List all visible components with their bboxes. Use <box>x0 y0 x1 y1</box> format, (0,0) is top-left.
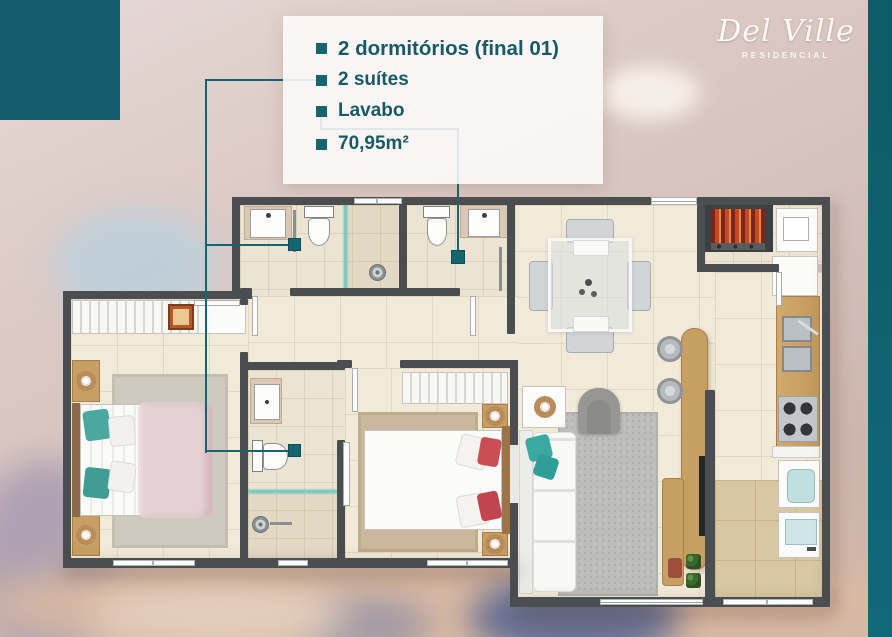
lamp-suite1-bottom <box>76 525 96 545</box>
spec-row-suites: 2 suítes <box>316 70 409 91</box>
floor-hall <box>248 296 518 368</box>
shower-head-suite2-bath <box>252 516 269 533</box>
window-bedroom1 <box>113 560 195 566</box>
door-leaf-lavabo <box>470 296 476 336</box>
shower-head-suite1-bath <box>369 264 386 281</box>
blanket-suite1 <box>138 402 212 518</box>
bullet-square-icon <box>316 43 327 54</box>
background-napkin-blur <box>90 585 350 637</box>
leader-suite2-branch <box>205 450 289 452</box>
wall-right <box>822 197 830 607</box>
marker-lavabo <box>451 250 465 264</box>
kitchen-sink-2 <box>782 346 812 372</box>
window-bedroom2 <box>427 560 508 566</box>
marker-suite2-bathroom <box>288 444 301 457</box>
placemat-top <box>573 240 609 256</box>
background-ceiling-light <box>600 66 700 120</box>
wall-bathblock-bottom-a <box>240 288 252 296</box>
lamp-suite2-bottom <box>485 534 505 554</box>
wardrobe-suite2 <box>402 372 508 404</box>
spec-suites: 2 suítes <box>338 70 409 91</box>
plant-2 <box>686 573 701 588</box>
bar-stool-1 <box>657 336 683 362</box>
sink-suite1-bath <box>250 209 286 238</box>
balcony-counter <box>776 208 818 252</box>
spec-panel: 2 dormitórios (final 01) 2 suítes Lavabo… <box>283 16 603 184</box>
kitchen-shelf <box>772 446 820 458</box>
bullet-square-icon <box>316 139 327 150</box>
washer <box>778 512 820 558</box>
leader-suite1-branch <box>205 244 289 246</box>
bullet-square-icon <box>316 106 327 117</box>
toilet-suite2-bath <box>263 443 288 470</box>
wall-bath1-lavabo-divider <box>399 205 407 296</box>
door-leaf-bedroom2-folded <box>510 445 518 503</box>
wall-bathblock-bottom-b <box>290 288 460 296</box>
spec-row-dormitorios: 2 dormitórios (final 01) <box>316 38 559 61</box>
wall-balcony-left <box>697 205 705 272</box>
decor-vase <box>668 558 682 578</box>
wall-top-main <box>232 197 651 205</box>
window-service <box>723 599 813 605</box>
headboard-suite1 <box>72 403 80 517</box>
wall-bedroom2-top-b <box>400 360 518 368</box>
door-leaf-bath2 <box>343 442 350 506</box>
pillow-white-1 <box>108 415 137 447</box>
wall-living-kitchen-divider <box>705 390 715 607</box>
marketing-slide: 2 dormitórios (final 01) 2 suítes Lavabo… <box>0 0 892 637</box>
towel-rail-lavabo <box>499 247 502 291</box>
wall-bathblock-left <box>232 197 240 296</box>
placemat-bottom <box>573 316 609 332</box>
wall-bedroom2-top-a <box>337 360 352 368</box>
window-bath1 <box>354 198 402 204</box>
wall-bedroom1-right-stub <box>240 299 248 305</box>
wall-top-bedroom1 <box>63 291 252 299</box>
corner-block <box>0 0 120 120</box>
spec-area: 70,95m² <box>338 134 409 155</box>
brand-subtitle: RESIDENCIAL <box>700 50 872 60</box>
cooktop <box>778 396 818 442</box>
door-leaf-balcony <box>776 272 782 306</box>
wall-bath2-top <box>240 362 345 370</box>
sliding-door-living <box>600 599 703 605</box>
door-leaf-bedroom1 <box>194 300 240 306</box>
bar-stool-2 <box>657 378 683 404</box>
wall-bedroom1-right <box>240 352 248 568</box>
brand-name: Del Ville <box>700 14 872 49</box>
headboard-suite2 <box>502 426 510 534</box>
toilet-lavabo <box>427 218 447 246</box>
door-leaf-bath1 <box>252 296 258 336</box>
wall-lavabo-right <box>507 197 515 334</box>
toilet-suite1-bath <box>308 218 330 246</box>
bbq-grill-unit <box>703 205 773 252</box>
spec-dormitorios: 2 dormitórios (final 01) <box>338 38 559 61</box>
window-bath2 <box>278 560 308 566</box>
wall-top-balcony <box>697 197 830 205</box>
bbq-coals <box>711 209 765 243</box>
marker-suite1-bathroom <box>288 238 301 251</box>
dishwasher <box>778 460 820 508</box>
toilet-tank-suite2-bath <box>252 440 263 472</box>
spec-row-area: 70,95m² <box>316 134 409 155</box>
sink-lavabo <box>468 209 500 237</box>
wall-left <box>63 291 71 568</box>
leader-suites-vertical <box>205 79 207 453</box>
wall-step <box>510 558 518 607</box>
wall-balcony-bottom <box>697 264 779 272</box>
door-leaf-bedroom2 <box>352 368 358 412</box>
plant-1 <box>686 554 701 569</box>
sink-suite2-bath <box>254 384 280 420</box>
lamp-living <box>534 396 556 418</box>
side-band <box>868 0 892 637</box>
toilet-tank-lavabo <box>423 206 450 218</box>
sliding-door-balcony-top <box>651 197 697 205</box>
lamp-suite2-top <box>485 406 505 426</box>
lamp-suite1-top <box>76 371 96 391</box>
pillow-white-2 <box>107 460 137 493</box>
brand-logo: Del Ville RESIDENCIAL <box>700 14 872 60</box>
armchair-seat <box>587 400 611 434</box>
shower-arm-suite2-bath <box>270 522 292 525</box>
toilet-tank-suite1-bath <box>304 206 334 218</box>
spec-row-lavabo: Lavabo <box>316 101 405 122</box>
decor-tray-suite1 <box>168 304 194 330</box>
bullet-square-icon <box>316 75 327 86</box>
spec-lavabo: Lavabo <box>338 101 405 122</box>
